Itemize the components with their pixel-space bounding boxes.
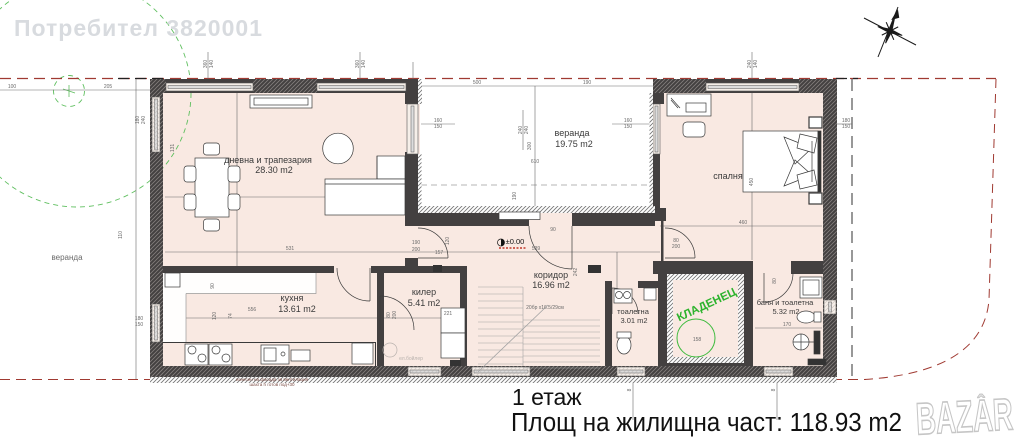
svg-text:190: 190 — [583, 80, 592, 86]
svg-text:дневна и трапезария: дневна и трапезария — [224, 155, 312, 165]
svg-text:531: 531 — [286, 246, 295, 252]
svg-text:300: 300 — [527, 142, 533, 151]
svg-text:240: 240 — [524, 126, 530, 135]
svg-text:140: 140 — [753, 60, 759, 69]
svg-text:170: 170 — [783, 322, 792, 328]
svg-text:5.41 m2: 5.41 m2 — [408, 298, 441, 308]
svg-text:1 етаж: 1 етаж — [512, 384, 582, 410]
svg-text:Потребител 3820001: Потребител 3820001 — [14, 15, 262, 41]
svg-text:120: 120 — [212, 312, 218, 321]
svg-text:157: 157 — [435, 250, 444, 256]
svg-text:±0.00: ±0.00 — [506, 237, 525, 246]
svg-text:190: 190 — [412, 240, 421, 246]
svg-text:205: 205 — [104, 84, 113, 90]
svg-text:150: 150 — [842, 124, 851, 130]
svg-text:200: 200 — [392, 311, 398, 320]
svg-text:140: 140 — [361, 60, 367, 69]
svg-text:140: 140 — [209, 60, 215, 69]
svg-text:190: 190 — [512, 192, 518, 201]
svg-text:3.01 m2: 3.01 m2 — [620, 316, 647, 325]
svg-text:240: 240 — [141, 116, 147, 125]
svg-text:спалня: спалня — [713, 171, 743, 181]
svg-text:веранда: веранда — [51, 253, 83, 262]
svg-text:221: 221 — [444, 311, 453, 317]
svg-text:8: 8 — [771, 388, 777, 391]
svg-text:150: 150 — [434, 124, 443, 130]
svg-text:BAZAR: BAZAR — [915, 388, 1015, 444]
svg-text:20бр x16.5/29см: 20бр x16.5/29см — [526, 305, 564, 311]
svg-text:баня и тоалетна: баня и тоалетна — [757, 298, 814, 307]
svg-text:16.96 m2: 16.96 m2 — [532, 280, 570, 290]
svg-text:150: 150 — [624, 124, 633, 130]
svg-text:539: 539 — [532, 246, 541, 252]
svg-text:200: 200 — [672, 244, 681, 250]
svg-text:тоалетна: тоалетна — [617, 307, 650, 316]
svg-text:13.61 m2: 13.61 m2 — [278, 304, 316, 314]
svg-text:100: 100 — [8, 84, 17, 90]
svg-text:460: 460 — [739, 220, 748, 226]
svg-text:90: 90 — [550, 227, 556, 233]
svg-text:131: 131 — [170, 144, 176, 153]
svg-text:500: 500 — [473, 80, 482, 86]
svg-text:610: 610 — [531, 159, 540, 165]
svg-text:ел.бойлер: ел.бойлер — [399, 355, 423, 362]
svg-text:80: 80 — [772, 278, 778, 284]
svg-text:120: 120 — [445, 237, 451, 246]
svg-text:коридор: коридор — [534, 270, 568, 280]
svg-text:Площ на жилищна част: 118.93 m: Площ на жилищна част: 118.93 m2 — [511, 409, 902, 437]
svg-text:242: 242 — [573, 268, 579, 277]
svg-text:150: 150 — [135, 322, 144, 328]
svg-text:74: 74 — [228, 313, 234, 319]
svg-text:килер: килер — [412, 287, 436, 297]
svg-text:кухня: кухня — [281, 293, 304, 303]
svg-text:450: 450 — [749, 178, 755, 187]
svg-text:шахта h готов под+30: шахта h готов под+30 — [249, 382, 295, 387]
svg-text:8: 8 — [627, 388, 633, 391]
svg-text:веранда: веранда — [555, 128, 590, 138]
svg-text:19.75 m2: 19.75 m2 — [555, 139, 593, 149]
svg-text:28.30 m2: 28.30 m2 — [255, 165, 293, 175]
svg-text:200: 200 — [412, 247, 421, 253]
svg-text:5.32 m2: 5.32 m2 — [772, 307, 799, 316]
svg-text:158: 158 — [693, 337, 702, 343]
svg-text:110: 110 — [118, 231, 124, 239]
svg-text:90: 90 — [210, 283, 216, 289]
svg-text:556: 556 — [248, 307, 257, 313]
